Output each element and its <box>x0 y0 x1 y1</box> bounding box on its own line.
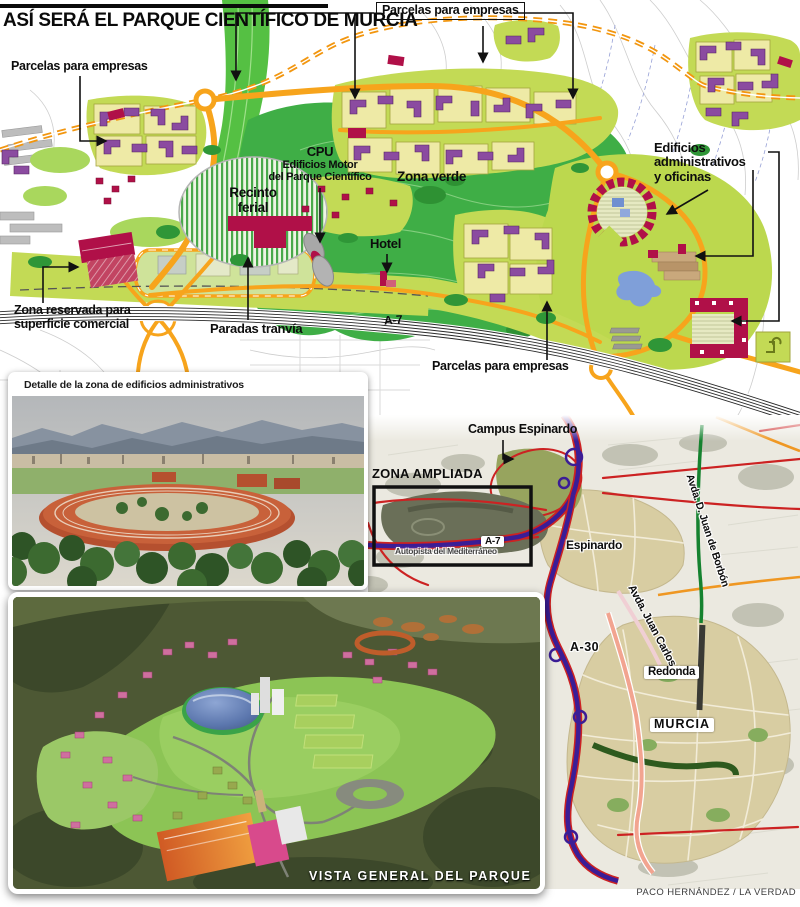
label-admin-line2: administrativos <box>654 155 746 169</box>
page-title: ASÍ SERÁ EL PARQUE CIENTÍFICO DE MURCIA <box>3 10 417 32</box>
label-comercial-line1: Zona reservada para <box>14 304 131 318</box>
label-cpu: CPU Edificios Motor del Parque Científic… <box>252 145 388 183</box>
label-zona-ampliada: ZONA AMPLIADA <box>372 467 483 481</box>
label-a30: A-30 <box>570 641 599 655</box>
overview-3d: VISTA GENERAL DEL PARQUE <box>8 592 545 894</box>
label-admin: Edificios administrativos y oficinas <box>654 141 746 184</box>
label-espinardo: Espinardo <box>566 539 622 552</box>
label-zona-verde: Zona verde <box>397 170 466 185</box>
title-bar <box>0 4 328 8</box>
utility-square <box>756 332 790 362</box>
label-recinto-ferial: Recinto ferial <box>200 186 306 216</box>
infographic-canvas: ASÍ SERÁ EL PARQUE CIENTÍFICO DE MURCIA … <box>0 0 800 907</box>
label-redonda: Redonda <box>644 666 699 679</box>
label-recinto-line1: Recinto <box>200 186 306 201</box>
label-parcelas-bottom: Parcelas para empresas <box>432 360 569 374</box>
credit-byline: PACO HERNÁNDEZ / LA VERDAD <box>588 887 796 898</box>
label-a7-main: A-7 <box>384 313 403 327</box>
label-admin-line3: y oficinas <box>654 170 746 184</box>
detail-photo: Detalle de la zona de edificios administ… <box>8 372 368 590</box>
label-cpu-line2: Edificios Motor <box>252 159 388 171</box>
label-hotel: Hotel <box>370 237 401 251</box>
label-cpu-title: CPU <box>252 145 388 159</box>
c-building <box>690 298 748 358</box>
label-autopista: Autopista del Mediterráneo <box>395 547 497 556</box>
label-tranvia: Paradas tranvía <box>210 322 302 336</box>
label-a7-area: A-7 <box>481 536 504 547</box>
label-murcia: MURCIA <box>650 718 714 732</box>
overview-caption: VISTA GENERAL DEL PARQUE <box>309 869 531 883</box>
detail-photo-caption: Detalle de la zona de edificios administ… <box>24 379 244 391</box>
label-comercial: Zona reservada para superficie comercial <box>14 304 131 332</box>
label-recinto-line2: ferial <box>200 201 306 216</box>
label-campus: Campus Espinardo <box>468 423 577 437</box>
label-comercial-line2: superficie comercial <box>14 318 131 332</box>
label-cpu-line3: del Parque Científico <box>252 171 388 183</box>
overview-3d-image <box>13 597 540 889</box>
label-parcelas-left: Parcelas para empresas <box>11 60 148 74</box>
label-parcelas-top: Parcelas para empresas <box>376 2 525 20</box>
label-admin-line1: Edificios <box>654 141 746 155</box>
detail-photo-image <box>12 396 364 586</box>
